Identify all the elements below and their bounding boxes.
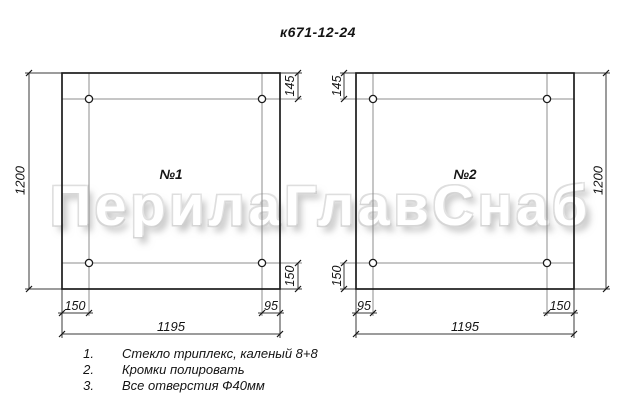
note-number: 2. (70, 362, 94, 377)
panel1-dim-hole-right: 95 (250, 300, 292, 313)
hole-marker (543, 95, 550, 102)
hole-marker (543, 259, 550, 266)
hole-marker (258, 95, 265, 102)
hole-marker (369, 259, 376, 266)
panel1-construction-lines (62, 73, 302, 316)
hole-markers (85, 95, 550, 266)
hole-marker (369, 95, 376, 102)
panel2-construction-lines (340, 73, 574, 316)
panel1-label: №1 (121, 168, 221, 181)
panel1-dim-height: 1200 (14, 154, 27, 208)
panel1-dim-bottom-offset: 150 (284, 254, 296, 298)
panel2-dim-hole-left: 95 (343, 300, 385, 313)
panel1-dimension-ticks (26, 70, 301, 337)
panel1-dim-top-offset: 145 (284, 64, 296, 108)
panel2-label: №2 (415, 168, 515, 181)
note-number: 3. (70, 378, 94, 393)
drawing-linework (0, 0, 641, 410)
panel1-dim-width: 1195 (131, 320, 211, 333)
note-text: Стекло триплекс, каленый 8+8 (122, 346, 318, 361)
drawing-sheet: ПерилаГлавСнаб (0, 0, 641, 410)
panel2-dim-width: 1195 (425, 320, 505, 333)
hole-marker (258, 259, 265, 266)
note-number: 1. (70, 346, 94, 361)
hole-marker (85, 95, 92, 102)
note-text: Все отверстия Ф40мм (122, 378, 265, 393)
drawing-title: к671-12-24 (238, 26, 398, 39)
panel2-dim-bottom-offset: 150 (331, 254, 343, 298)
note-text: Кромки полировать (122, 362, 245, 377)
panel2-dim-top-offset: 145 (331, 64, 343, 108)
panel2-dim-height: 1200 (592, 154, 605, 208)
hole-marker (85, 259, 92, 266)
panel1-dim-hole-left: 150 (54, 300, 96, 313)
panel2-dim-hole-right: 150 (539, 300, 581, 313)
panel2-dimension-ticks (341, 70, 609, 337)
